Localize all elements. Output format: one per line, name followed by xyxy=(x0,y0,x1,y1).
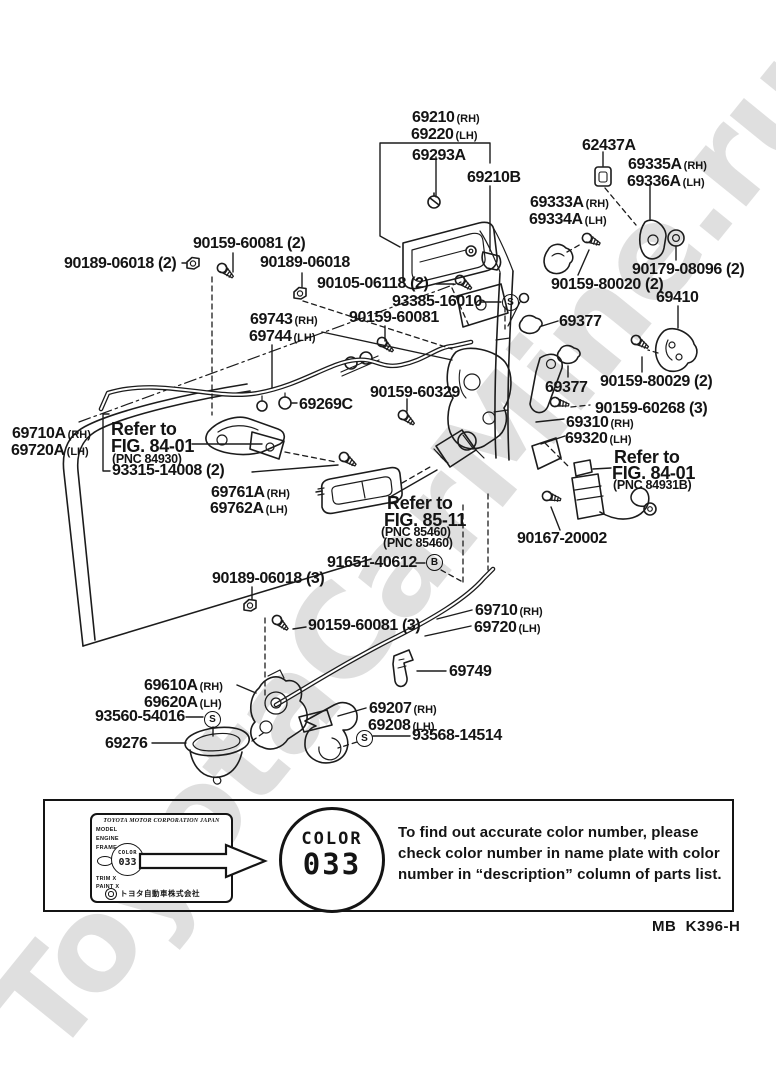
refer-note-line: (PNC 85460) xyxy=(383,537,453,550)
part-label: 69293A xyxy=(412,148,466,165)
circled-s-mark: S xyxy=(204,711,221,728)
part-label: 69276 xyxy=(105,736,148,753)
part-label: 69207(RH) xyxy=(369,701,437,718)
figure-code: MB K396-H xyxy=(652,919,740,934)
inside-handle xyxy=(206,393,291,459)
circled-s-mark: S xyxy=(356,730,373,747)
part-label: 69377 xyxy=(545,380,588,397)
part-label: 90159-60081 (3) xyxy=(308,618,420,635)
part-label: 69210(RH) xyxy=(412,110,480,127)
part-label: 69762A(LH) xyxy=(210,501,288,518)
part-label: 91651-40612 xyxy=(327,555,417,572)
part-label: 69320(LH) xyxy=(565,431,632,448)
striker-69410 xyxy=(656,329,697,372)
part-label: 69210B xyxy=(467,170,521,187)
part-label: 69720(LH) xyxy=(474,620,541,637)
part-label: 90167-20002 xyxy=(517,531,607,548)
grommet xyxy=(668,230,684,246)
part-label: 90159-60081 xyxy=(349,310,439,327)
part-label: 93568-14514 xyxy=(412,728,502,745)
part-label: 69269C xyxy=(299,397,353,414)
part-label: 69410 xyxy=(656,290,699,307)
circled-b-mark: B xyxy=(426,554,443,571)
clip-69749 xyxy=(393,650,413,686)
part-label: 90159-80020 (2) xyxy=(551,277,663,294)
part-label: 90159-60329 xyxy=(370,385,460,402)
part-label: 90189-06018 (3) xyxy=(212,571,324,588)
cup-69276 xyxy=(185,727,249,784)
part-label: 69333A(RH) xyxy=(530,195,609,212)
part-label: 69744(LH) xyxy=(249,329,316,346)
part-label: 69336A(LH) xyxy=(627,174,705,191)
clip-69377-lower xyxy=(558,346,581,364)
part-label: 69335A(RH) xyxy=(628,157,707,174)
part-label: 69220(LH) xyxy=(411,127,478,144)
part-label: 69334A(LH) xyxy=(529,212,607,229)
part-label: 69710(RH) xyxy=(475,603,543,620)
color-info-panel: TOYOTA MOTOR CORPORATION JAPAN MODEL ENG… xyxy=(43,799,734,912)
part-label: 69377 xyxy=(559,314,602,331)
color-note: To find out accurate color number, pleas… xyxy=(398,822,728,885)
part-label: 90159-80029 (2) xyxy=(600,374,712,391)
parts-diagram-page: ToyotaCarMine.ru xyxy=(0,0,776,1082)
part-label: 90189-06018 (2) xyxy=(64,256,176,273)
crank-pad xyxy=(299,710,332,732)
circled-s-mark: S xyxy=(502,294,519,311)
clip-69377-upper xyxy=(520,316,543,334)
part-label: 62437A xyxy=(582,138,636,155)
bracket-69335a xyxy=(640,220,666,259)
color-note-line: To find out accurate color number, pleas… xyxy=(398,822,728,843)
color-note-line: number in “description” column of parts … xyxy=(398,864,728,885)
part-label: 90105-06118 (2) xyxy=(317,276,428,293)
color-note-line: check color number in name plate with co… xyxy=(398,843,728,864)
part-label: 93560-54016 xyxy=(95,709,185,726)
refer-note-line: (PNC 84930) xyxy=(112,453,182,466)
refer-note-line: (PNC 84931B) xyxy=(613,479,691,492)
color-badge: COLOR 033 xyxy=(279,807,385,913)
clip-62437a xyxy=(595,167,611,186)
crank-69207 xyxy=(305,703,357,763)
clip-69333a xyxy=(544,244,573,273)
part-label: 69720A(LH) xyxy=(11,443,89,460)
part-label: 69610A(RH) xyxy=(144,678,223,695)
part-label: 90159-60081 (2) xyxy=(193,236,305,253)
part-label: 90189-06018 xyxy=(260,255,350,272)
part-label: 69710A(RH) xyxy=(12,426,91,443)
part-label: 69749 xyxy=(449,664,492,681)
lower-latch xyxy=(251,670,357,763)
part-label: 69743(RH) xyxy=(250,312,318,329)
